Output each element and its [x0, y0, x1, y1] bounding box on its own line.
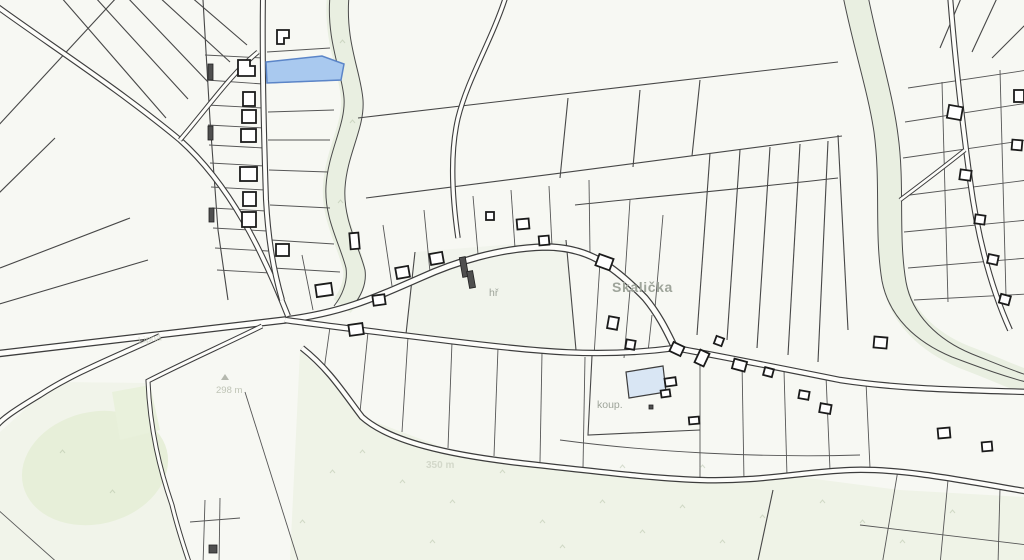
playground-label: hř — [489, 287, 499, 299]
cadastral-map-svg: Skalička hř koup. 298 m 350 m Lipná — [0, 0, 1024, 560]
pond-water — [266, 56, 344, 83]
map-canvas[interactable]: Skalička hř koup. 298 m 350 m Lipná — [0, 0, 1024, 560]
elevation-point-label: 298 m — [216, 385, 242, 396]
pool-label: koup. — [597, 399, 623, 411]
village-name-label: Skalička — [612, 279, 673, 295]
swimming-pool-water — [626, 366, 666, 398]
elevation-area-label: 350 m — [426, 460, 454, 471]
